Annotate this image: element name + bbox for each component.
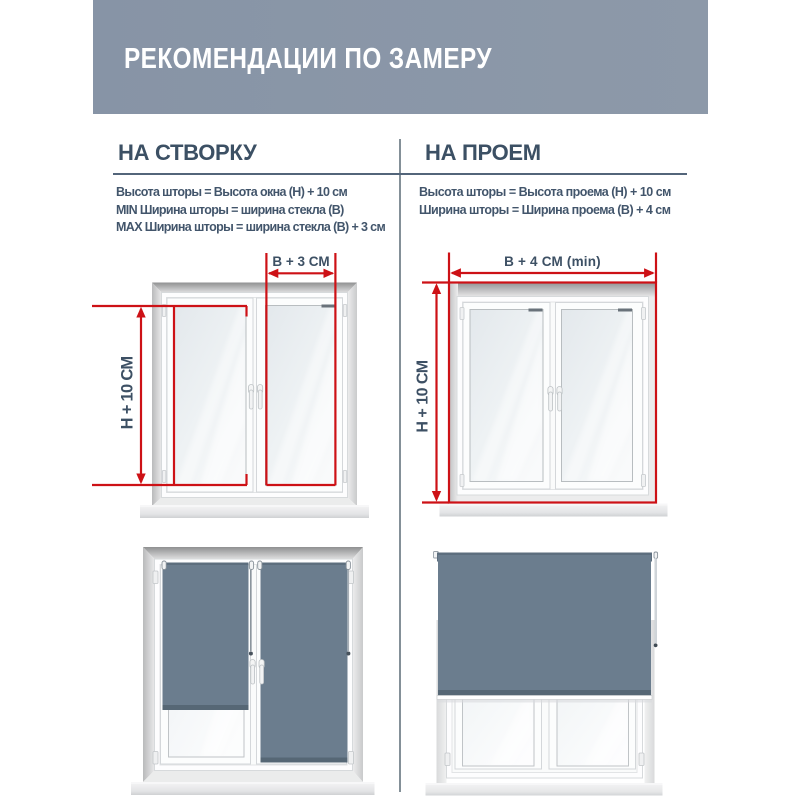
svg-text:B + 3 СМ: B + 3 СМ xyxy=(272,254,329,269)
svg-text:H + 10 СМ: H + 10 СМ xyxy=(119,357,137,430)
svg-text:B + 4 СМ (min): B + 4 СМ (min) xyxy=(504,254,601,269)
svg-text:H + 10 СМ: H + 10 СМ xyxy=(415,360,432,432)
